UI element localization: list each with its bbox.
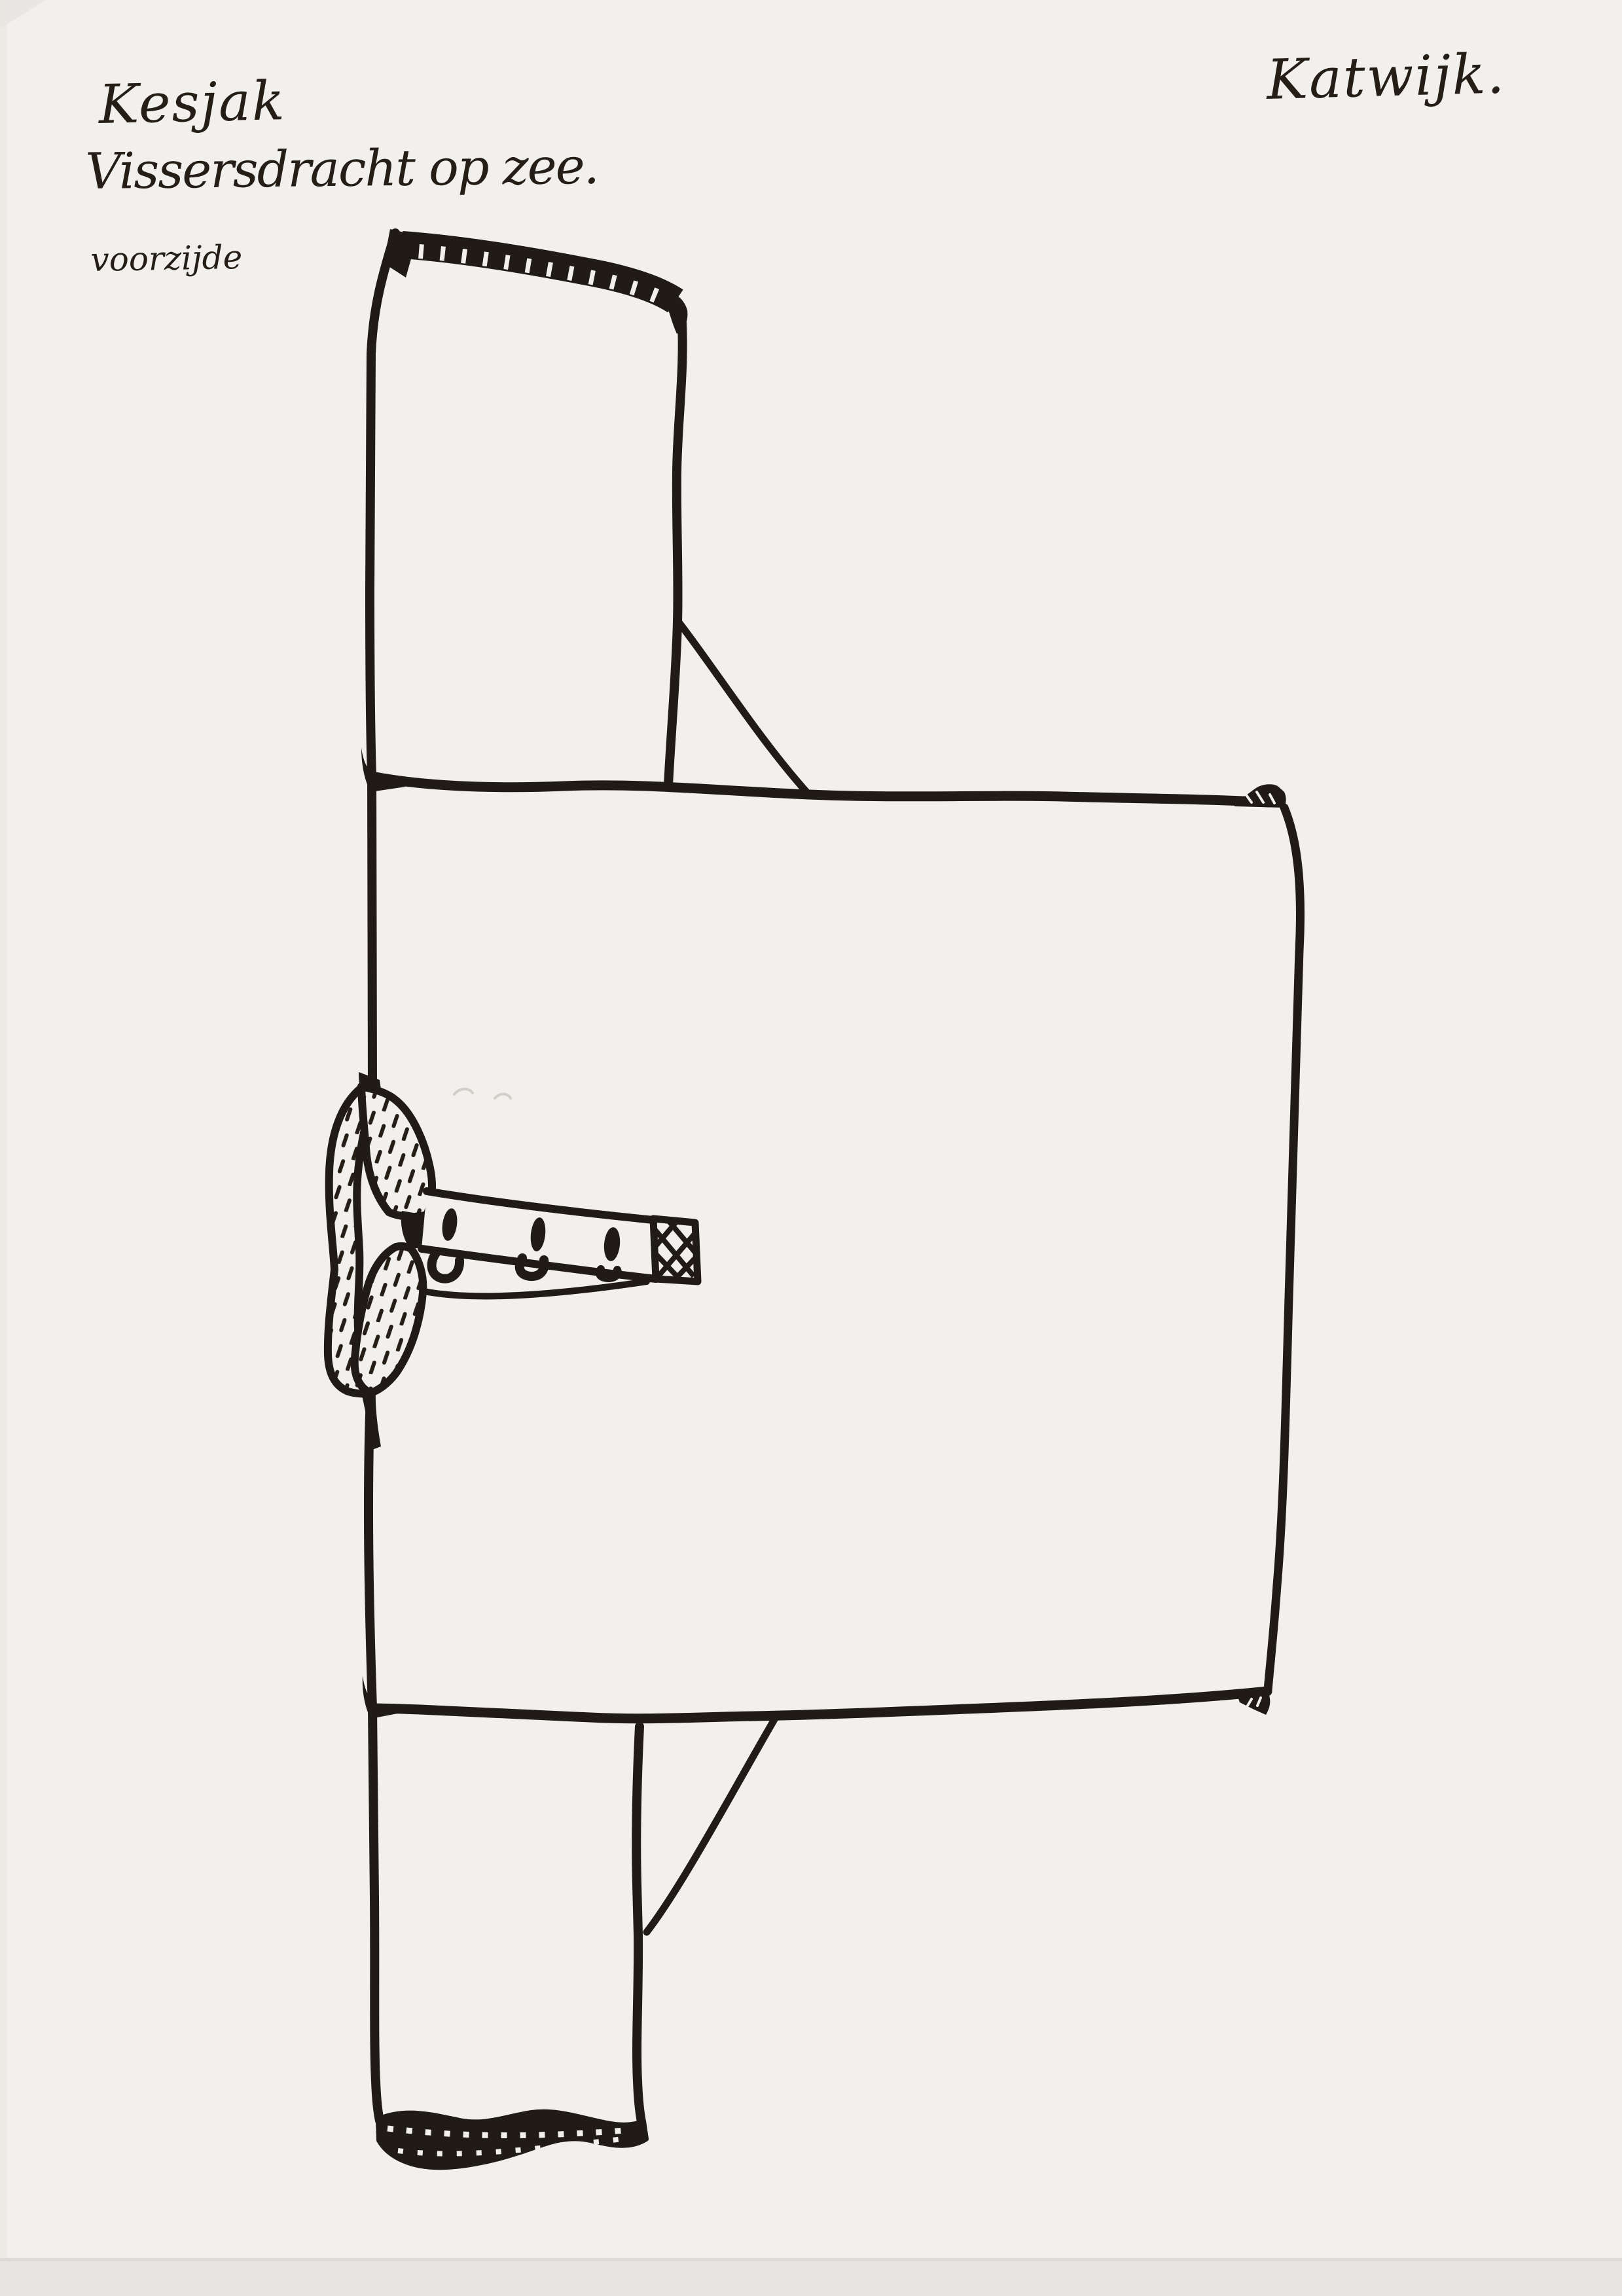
body-top-edge: [372, 776, 1270, 802]
lower-underarm-seam: [647, 1716, 776, 1932]
garment-drawing: [0, 0, 1622, 2296]
collar-upper-lobe: [361, 1086, 432, 1217]
scan-shadow-band: [0, 2261, 1622, 2296]
pencil-mark: [454, 1089, 473, 1094]
pencil-mark: [495, 1094, 511, 1098]
lower-sleeve-edge: [636, 1727, 641, 2122]
hem-gusset-mark: [1237, 1693, 1270, 1715]
scanned-page: Kesjak Vissersdracht op zee. voorzijde K…: [0, 0, 1622, 2296]
upper-sleeve-edge: [668, 313, 683, 785]
lower-sleeve-cuff-band: [378, 2112, 646, 2168]
label-garment-name: Kesjak: [98, 75, 286, 132]
label-subtitle: Vissersdracht op zee.: [85, 141, 598, 196]
label-view-side: voorzijde: [90, 241, 243, 276]
collar-lower-lobe: [355, 1246, 424, 1393]
label-location: Katwijk.: [1266, 46, 1506, 107]
pencil-marks: [454, 1089, 511, 1098]
fold-line-upper: [370, 233, 395, 1085]
upper-underarm-seam: [679, 623, 808, 793]
body-bottom-edge: [373, 1691, 1267, 1719]
body-side-edge: [1268, 808, 1300, 1690]
placket-underflap-edge: [424, 1282, 647, 1296]
fold-line-lower: [369, 1395, 380, 2121]
paper-crease-line: [0, 2258, 1622, 2261]
ink-layer: [328, 229, 1301, 2167]
